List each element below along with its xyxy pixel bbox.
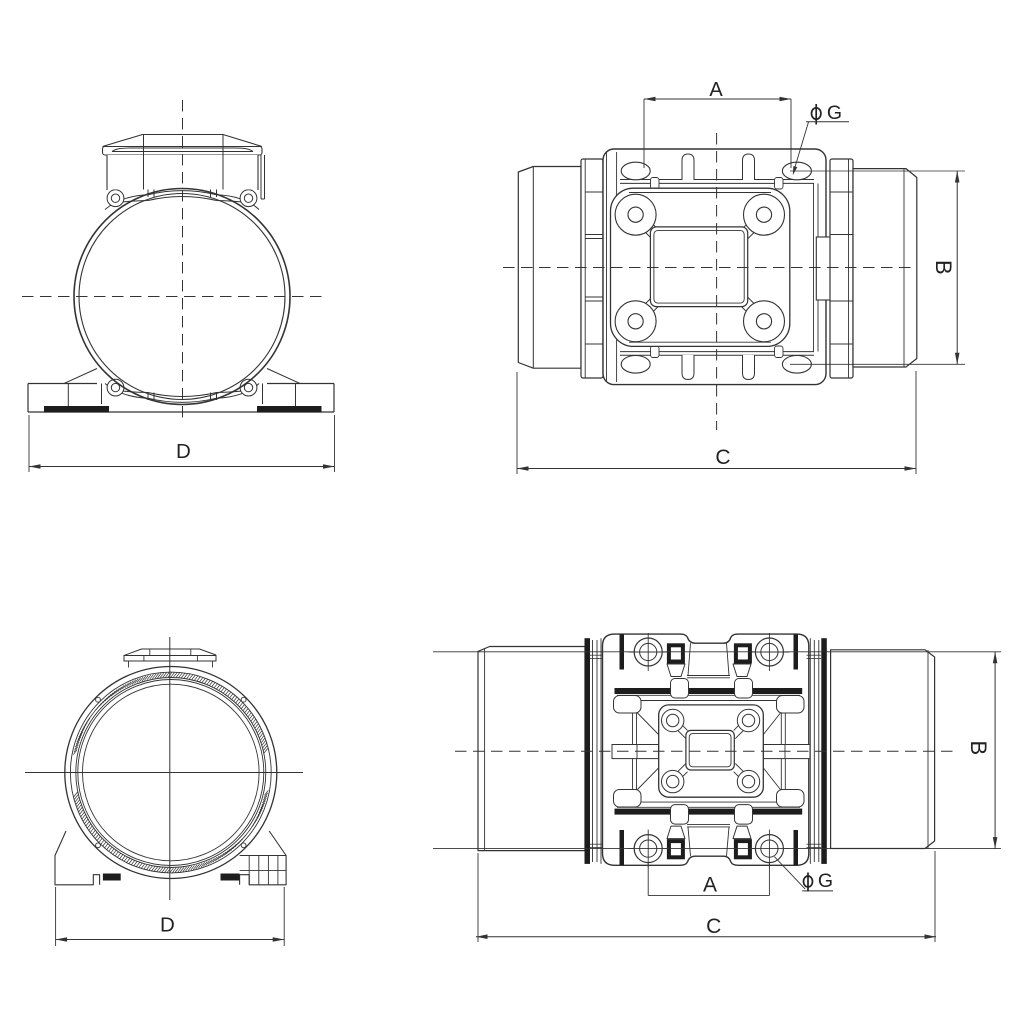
svg-text:B: B bbox=[931, 260, 956, 275]
svg-text:G: G bbox=[827, 102, 842, 124]
svg-text:D: D bbox=[160, 914, 175, 937]
svg-text:C: C bbox=[715, 446, 730, 469]
svg-text:D: D bbox=[176, 440, 191, 463]
svg-text:A: A bbox=[703, 874, 717, 897]
svg-text:B: B bbox=[966, 740, 991, 755]
svg-text:A: A bbox=[709, 79, 723, 101]
svg-text:G: G bbox=[818, 870, 833, 892]
svg-text:C: C bbox=[706, 915, 721, 938]
